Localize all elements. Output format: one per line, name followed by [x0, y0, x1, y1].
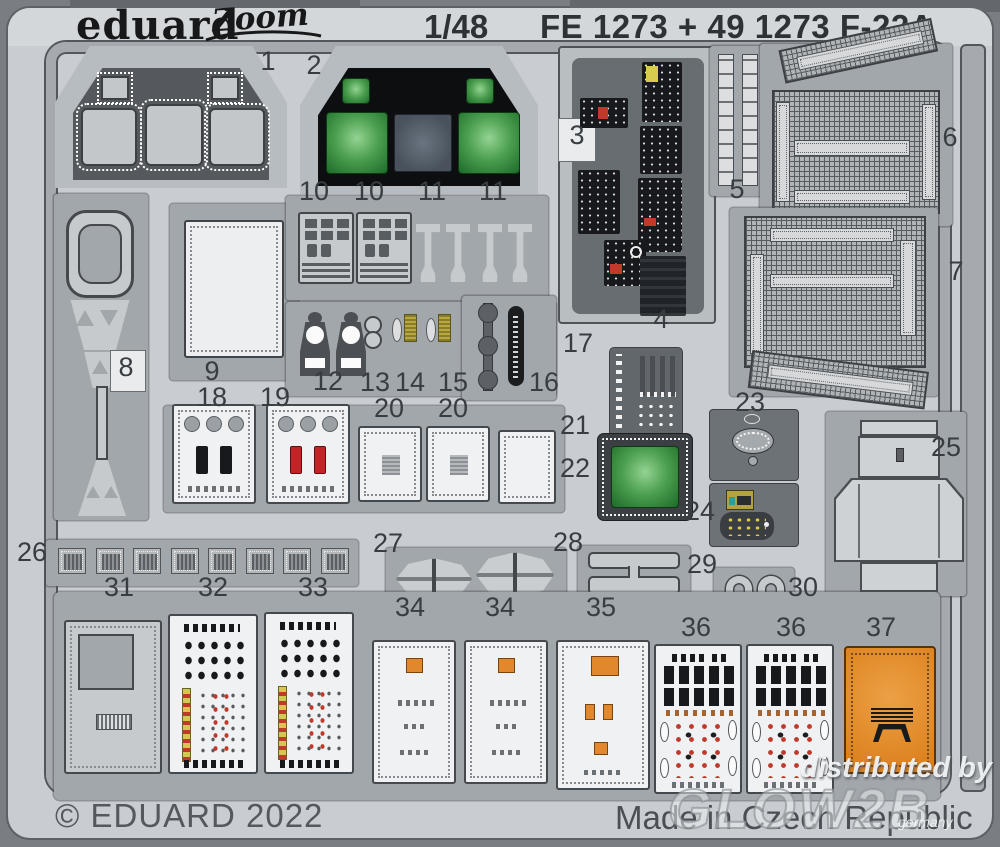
part-2-panel-frame-printed: [300, 46, 538, 194]
part-7-mesh-body: [744, 216, 926, 368]
part-8-handle: [54, 194, 148, 520]
photoetch-sheet-photo: eduard Zoom 1/48 FE 1273 + 49 1273 F-22A: [0, 0, 1000, 847]
part-1-panel-frame: [55, 46, 287, 188]
zoom-swash-icon: [204, 28, 324, 44]
part-number-label: 5: [729, 176, 744, 203]
part-number-label: 20: [438, 395, 468, 422]
part-number-label: 12: [313, 368, 343, 395]
part-6-mesh-body: [772, 90, 940, 214]
part-34-panel-a: [372, 640, 456, 784]
part-number-label: 36: [776, 614, 806, 641]
part-34-panel-b: [464, 640, 548, 784]
part-number-label: 20: [374, 395, 404, 422]
part-19-panel: [266, 404, 350, 504]
watermark-germany: germany: [898, 814, 952, 830]
part-number-label: 7: [948, 258, 963, 285]
part-35-panel: [556, 640, 650, 790]
part-33-panel: [264, 612, 354, 774]
part-3-4-instrument-plate: [558, 46, 716, 324]
part-number-label: 32: [198, 574, 228, 601]
copyright-text: © EDUARD 2022: [55, 797, 323, 835]
part-18-panel: [172, 404, 256, 504]
part-number-label: 4: [653, 306, 668, 333]
part-number-label: 25: [931, 434, 961, 461]
watermark-glow2b: GLOW2B: [668, 776, 932, 841]
part-17-console: [610, 348, 682, 436]
part-number-label: 27: [373, 530, 403, 557]
part-number-label: 10: [354, 178, 384, 205]
part-number-label: 2: [306, 52, 321, 79]
part-number-label: 9: [204, 358, 219, 385]
part-number-label: 28: [553, 529, 583, 556]
part-number-label: 11: [418, 178, 446, 205]
part-22-mfd-screen: [598, 434, 692, 520]
part-number-label: 36: [681, 614, 711, 641]
part-number-label: 24: [685, 498, 715, 525]
part-number-label: 34: [395, 594, 425, 621]
part-number-label: 34: [485, 594, 515, 621]
part-32-panel: [168, 614, 258, 774]
part-20-plate-b: [426, 426, 490, 502]
part-9-panel: [170, 204, 298, 380]
part-11-a: [416, 224, 470, 282]
part-number-label: 19: [260, 384, 290, 411]
part-number-label: 14: [395, 369, 425, 396]
part-31-panel: [64, 620, 162, 774]
part-23-grip-top: [710, 410, 798, 480]
part-number-label: 37: [866, 614, 896, 641]
part-number-label: 16: [529, 369, 559, 396]
part-number-label: 31: [104, 574, 134, 601]
part-number-label: 22: [560, 455, 590, 482]
part-number-label: 18: [197, 384, 227, 411]
part-number-label: 3: [569, 122, 584, 149]
part-21-plate: [498, 430, 556, 504]
part-number-label: 23: [735, 389, 765, 416]
part-10-11-pedals: [286, 196, 548, 300]
part-number-label: 13: [360, 369, 390, 396]
part-number-label: 33: [298, 574, 328, 601]
part-number-label: 15: [438, 369, 468, 396]
part-20-plate-a: [358, 426, 422, 502]
part-number-label: 21: [560, 412, 590, 439]
part-number-label: 29: [687, 551, 717, 578]
part-number-label: 17: [563, 330, 593, 357]
part-number-label: 35: [586, 594, 616, 621]
part-number-label: 11: [479, 178, 507, 205]
part-number-label: 26: [17, 539, 47, 566]
scale-label: 1/48: [424, 8, 488, 46]
part-number-label: 30: [788, 574, 818, 601]
part-11-b: [478, 224, 532, 282]
part-number-label: 10: [299, 178, 329, 205]
part-number-label: 1: [260, 48, 275, 75]
part-number-label: 8: [118, 354, 133, 381]
part-24-grip-printed: [710, 484, 798, 546]
part-number-label: 6: [942, 124, 957, 151]
